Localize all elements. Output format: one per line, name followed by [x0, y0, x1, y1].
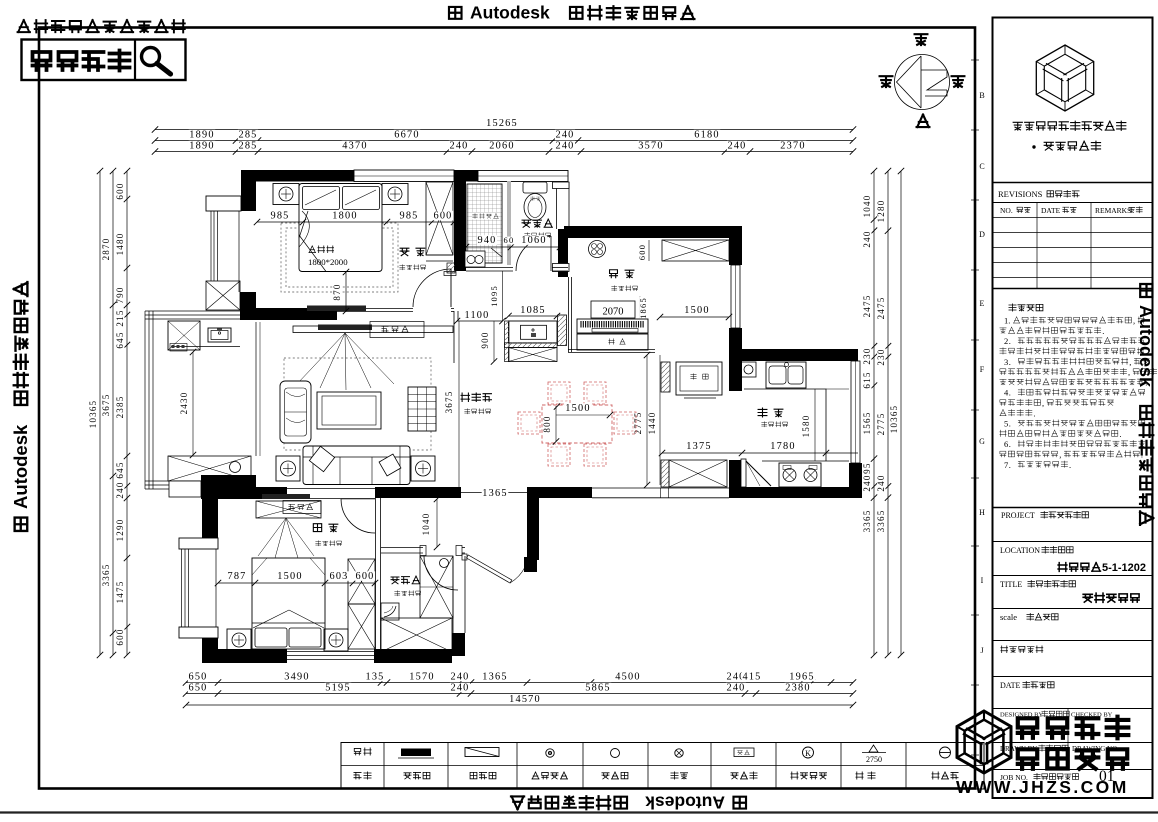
svg-text:2775: 2775 — [876, 413, 886, 436]
svg-text:1100: 1100 — [464, 310, 489, 321]
svg-text:1085: 1085 — [520, 305, 545, 316]
svg-text:Autodesk: Autodesk — [10, 424, 31, 509]
svg-text:E: E — [980, 299, 985, 308]
svg-text:1800*2000: 1800*2000 — [308, 257, 348, 267]
svg-text:WWW.JHZS.COM: WWW.JHZS.COM — [956, 777, 1129, 797]
svg-text:240: 240 — [450, 683, 469, 694]
svg-text:2870: 2870 — [101, 238, 111, 261]
svg-text:2750: 2750 — [866, 755, 882, 764]
svg-text:15265: 15265 — [486, 118, 518, 129]
svg-text:6: 6 — [1004, 439, 1008, 449]
svg-text:J: J — [980, 646, 983, 655]
svg-text:790: 790 — [115, 286, 125, 303]
svg-text:10365: 10365 — [88, 400, 98, 429]
svg-text:2380: 2380 — [785, 683, 810, 694]
svg-text:2385: 2385 — [115, 396, 125, 419]
svg-text:240: 240 — [450, 672, 469, 683]
svg-text:1780: 1780 — [770, 441, 795, 452]
svg-text:1500: 1500 — [277, 571, 302, 582]
svg-text:787: 787 — [227, 571, 246, 582]
svg-text:,: , — [1042, 398, 1044, 408]
svg-text:1580: 1580 — [801, 415, 811, 438]
svg-text:3570: 3570 — [638, 141, 663, 152]
svg-text:.: . — [1145, 347, 1147, 357]
svg-text:TITLE: TITLE — [1000, 580, 1022, 589]
svg-text:5-1-1202: 5-1-1202 — [1102, 562, 1146, 574]
svg-text:3675: 3675 — [101, 394, 111, 417]
svg-text:1365: 1365 — [482, 672, 507, 683]
svg-text:240: 240 — [862, 474, 872, 491]
svg-text:2430: 2430 — [179, 392, 189, 415]
svg-text:REVISIONS: REVISIONS — [998, 189, 1043, 199]
svg-text:1095: 1095 — [489, 285, 499, 307]
svg-text:900: 900 — [480, 331, 490, 348]
svg-text:1865: 1865 — [638, 297, 648, 319]
svg-text:985: 985 — [270, 211, 289, 222]
svg-text:240: 240 — [862, 230, 872, 247]
svg-text:240: 240 — [555, 130, 574, 141]
svg-text:1480: 1480 — [115, 233, 125, 256]
svg-text:600: 600 — [637, 244, 647, 260]
svg-text:G: G — [979, 437, 985, 446]
svg-text:870: 870 — [332, 283, 342, 300]
svg-text:1365: 1365 — [482, 488, 507, 499]
svg-text:.: . — [1009, 439, 1011, 449]
svg-text:1060: 1060 — [521, 235, 546, 246]
svg-text:2: 2 — [1004, 336, 1008, 346]
svg-text:1890: 1890 — [189, 141, 214, 152]
svg-text:1965: 1965 — [789, 672, 814, 683]
svg-text:3: 3 — [1004, 357, 1008, 367]
svg-text:6670: 6670 — [394, 130, 419, 141]
svg-text:3365: 3365 — [876, 510, 886, 533]
svg-text:5195: 5195 — [325, 683, 350, 694]
svg-text:I: I — [981, 576, 984, 585]
svg-text:240: 240 — [555, 141, 574, 152]
svg-text:1375: 1375 — [686, 441, 711, 452]
svg-text:600: 600 — [115, 182, 125, 199]
svg-text:3490: 3490 — [284, 672, 309, 683]
svg-text:1570: 1570 — [409, 672, 434, 683]
svg-text:215: 215 — [115, 309, 125, 326]
svg-text:D: D — [979, 230, 985, 239]
svg-text:.: . — [1009, 336, 1011, 346]
svg-text:1290: 1290 — [115, 519, 125, 542]
svg-text:1500: 1500 — [565, 403, 590, 414]
svg-text:1475: 1475 — [115, 581, 125, 604]
svg-text:3365: 3365 — [101, 564, 111, 587]
svg-text:.: . — [1102, 326, 1104, 336]
svg-text:2475: 2475 — [876, 297, 886, 320]
svg-text:.: . — [1069, 460, 1071, 470]
svg-text:.: . — [1009, 460, 1011, 470]
svg-text:1440: 1440 — [647, 412, 657, 435]
svg-text:.: . — [1145, 377, 1147, 387]
svg-text:,: , — [1059, 450, 1061, 460]
svg-text:600: 600 — [115, 628, 125, 645]
svg-text:1040: 1040 — [862, 195, 872, 218]
svg-text:240: 240 — [727, 141, 746, 152]
svg-text:Autodesk: Autodesk — [645, 793, 725, 813]
svg-text:LOCATION: LOCATION — [1000, 546, 1040, 555]
svg-text:5: 5 — [1004, 419, 1008, 429]
svg-text:2775: 2775 — [633, 412, 643, 435]
svg-text:615: 615 — [862, 371, 872, 388]
svg-text:600: 600 — [433, 211, 452, 222]
svg-text:1890: 1890 — [189, 130, 214, 141]
svg-text:2060: 2060 — [489, 141, 514, 152]
svg-text:2370: 2370 — [780, 141, 805, 152]
svg-text:985: 985 — [399, 211, 418, 222]
svg-text:DATE: DATE — [1041, 206, 1061, 215]
svg-text:415: 415 — [742, 672, 761, 683]
svg-text:1040: 1040 — [421, 513, 431, 536]
svg-text:650: 650 — [188, 683, 207, 694]
svg-text:800: 800 — [542, 415, 552, 432]
svg-text:4500: 4500 — [615, 672, 640, 683]
svg-text:.: . — [1033, 408, 1035, 418]
svg-text:285: 285 — [238, 141, 257, 152]
svg-text:240: 240 — [115, 481, 125, 498]
svg-text:,: , — [1129, 357, 1131, 367]
svg-text:230: 230 — [862, 347, 872, 364]
svg-text:.: . — [1141, 450, 1143, 460]
svg-text:DATE: DATE — [1000, 681, 1021, 690]
svg-text:.: . — [1008, 316, 1010, 326]
svg-text:K: K — [805, 749, 811, 758]
svg-text:285: 285 — [238, 130, 257, 141]
svg-text:2070: 2070 — [603, 307, 624, 318]
svg-text:.: . — [1009, 419, 1011, 429]
svg-text:C: C — [979, 162, 984, 171]
svg-text:3675: 3675 — [444, 391, 454, 414]
svg-text:1565: 1565 — [862, 412, 872, 435]
svg-text:1500: 1500 — [684, 305, 709, 316]
svg-text:135: 135 — [365, 672, 384, 683]
svg-text:F: F — [980, 365, 985, 374]
svg-text:240: 240 — [876, 474, 886, 491]
svg-text:.: . — [1119, 429, 1121, 439]
svg-text:60: 60 — [504, 235, 515, 245]
svg-text:B: B — [979, 91, 984, 100]
svg-text:1800: 1800 — [332, 211, 357, 222]
svg-text:645: 645 — [115, 331, 125, 348]
svg-text:600: 600 — [355, 571, 374, 582]
svg-text:230: 230 — [876, 348, 886, 365]
svg-text:14570: 14570 — [509, 694, 541, 705]
svg-text:1280: 1280 — [876, 200, 886, 223]
svg-text:NO.: NO. — [1000, 206, 1013, 215]
svg-text:.: . — [1009, 357, 1011, 367]
svg-text:603: 603 — [329, 571, 348, 582]
svg-text:PROJECT: PROJECT — [1001, 511, 1035, 520]
svg-text:940: 940 — [477, 235, 496, 246]
svg-text:.: . — [1009, 388, 1011, 398]
svg-text:240: 240 — [726, 683, 745, 694]
svg-text:scale: scale — [1000, 612, 1017, 622]
svg-text:,: , — [1128, 367, 1130, 377]
svg-text:4370: 4370 — [342, 141, 367, 152]
svg-text:5865: 5865 — [585, 683, 610, 694]
svg-text:7: 7 — [1004, 460, 1008, 470]
svg-text:3365: 3365 — [862, 510, 872, 533]
svg-text:,: , — [1133, 316, 1135, 326]
svg-text:645: 645 — [115, 461, 125, 478]
svg-text:650: 650 — [188, 672, 207, 683]
svg-text:REMARKS: REMARKS — [1095, 206, 1131, 215]
svg-text:H: H — [979, 508, 985, 517]
svg-text:240: 240 — [449, 141, 468, 152]
svg-text:2475: 2475 — [862, 295, 872, 318]
svg-text:Autodesk: Autodesk — [470, 3, 550, 23]
svg-text:10365: 10365 — [889, 405, 899, 434]
svg-text:6180: 6180 — [694, 130, 719, 141]
